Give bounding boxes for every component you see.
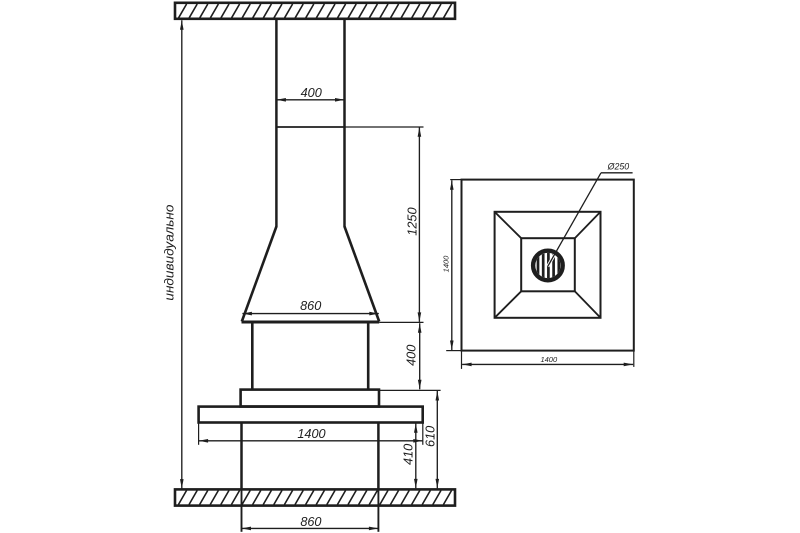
svg-text:410: 410 bbox=[401, 444, 415, 465]
svg-text:860: 860 bbox=[300, 299, 321, 313]
svg-text:400: 400 bbox=[404, 345, 418, 366]
svg-text:1400: 1400 bbox=[297, 427, 325, 441]
svg-text:1400: 1400 bbox=[442, 255, 451, 273]
svg-text:860: 860 bbox=[300, 515, 321, 529]
svg-text:1250: 1250 bbox=[406, 207, 420, 235]
svg-text:400: 400 bbox=[301, 86, 322, 100]
svg-text:Ø250: Ø250 bbox=[607, 162, 630, 172]
svg-text:индивидуально: индивидуально bbox=[162, 205, 177, 301]
svg-text:610: 610 bbox=[424, 426, 438, 447]
svg-text:1400: 1400 bbox=[540, 355, 558, 364]
